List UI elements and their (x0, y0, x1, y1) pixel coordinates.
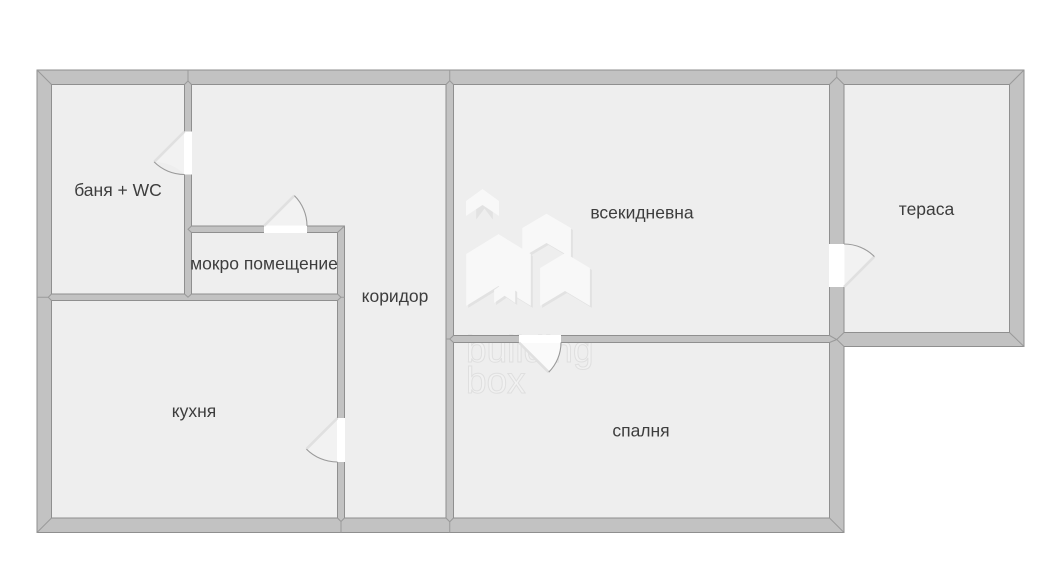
svg-text:баня + WC: баня + WC (74, 180, 162, 200)
svg-text:мокро помещение: мокро помещение (190, 254, 338, 274)
svg-text:спалня: спалня (612, 421, 669, 441)
svg-text:кухня: кухня (172, 401, 217, 421)
svg-text:box: box (466, 360, 526, 401)
svg-text:всекидневна: всекидневна (590, 203, 694, 223)
svg-text:коридор: коридор (362, 286, 429, 306)
svg-text:тераса: тераса (899, 199, 955, 219)
